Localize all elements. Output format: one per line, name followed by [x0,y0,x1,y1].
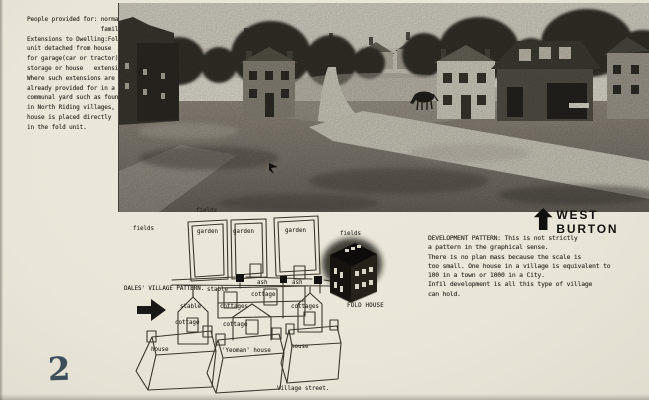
label-garden-1: garden [197,229,218,235]
label-ash-left: ash [257,280,267,286]
label-cottages-right: cottages [291,304,319,310]
label-village-street: Village street. [277,386,329,392]
development-note-text: DEVELOPMENT PATTERN: This is not strictl… [428,234,610,299]
margin-note-text: People provided for: normal family Exten… [27,15,129,133]
label-house-left: house [151,347,168,353]
pattern-title: DALES' VILLAGE PATTERN. [124,286,204,292]
village-name-heading: WEST BURTON [533,202,649,236]
village-photo [118,3,649,212]
village-photo-art [119,3,649,212]
label-fields-top: fields [196,208,217,214]
label-fields-left: fields [133,226,154,232]
scanned-report-page: People provided for: normal family Exten… [0,0,649,400]
up-arrow-icon [533,205,553,233]
label-fold-house: FOLD HOUSE [347,303,384,309]
label-cottage-lower: cottage [223,322,247,328]
label-yeoman-house: 'Yeoman' house [222,348,271,354]
label-house-right: house [291,344,308,350]
label-garden-2: garden [233,229,254,235]
right-arrow-icon [136,298,168,322]
label-cottage-mid: cottage [251,292,275,298]
label-stable-mid: stable [207,287,228,293]
label-ash-right: ash [292,280,302,286]
page-number: 2 [47,350,71,389]
label-fields-right: fields [340,231,361,237]
label-cottage-left: cottage [175,320,199,326]
village-name: WEST BURTON [556,208,649,236]
label-cottages-mid: cottages [220,304,248,310]
label-stable-left: stable [180,304,201,310]
fold-house-model [322,238,382,303]
label-garden-3: garden [285,228,306,234]
